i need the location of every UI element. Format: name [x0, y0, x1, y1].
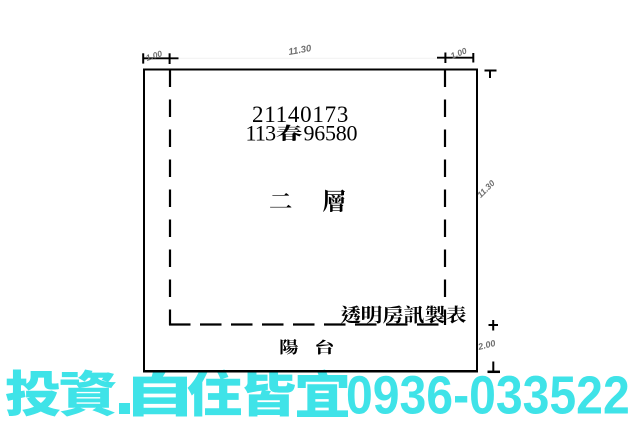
svg-text:1.00: 1.00 [145, 48, 164, 63]
svg-text:96580: 96580 [304, 121, 358, 146]
svg-text:11.30: 11.30 [288, 43, 313, 58]
svg-text:11.30: 11.30 [475, 178, 497, 200]
svg-text:2.00: 2.00 [476, 338, 496, 352]
svg-text:0936-033522: 0936-033522 [346, 365, 630, 425]
svg-text:113: 113 [246, 121, 277, 146]
